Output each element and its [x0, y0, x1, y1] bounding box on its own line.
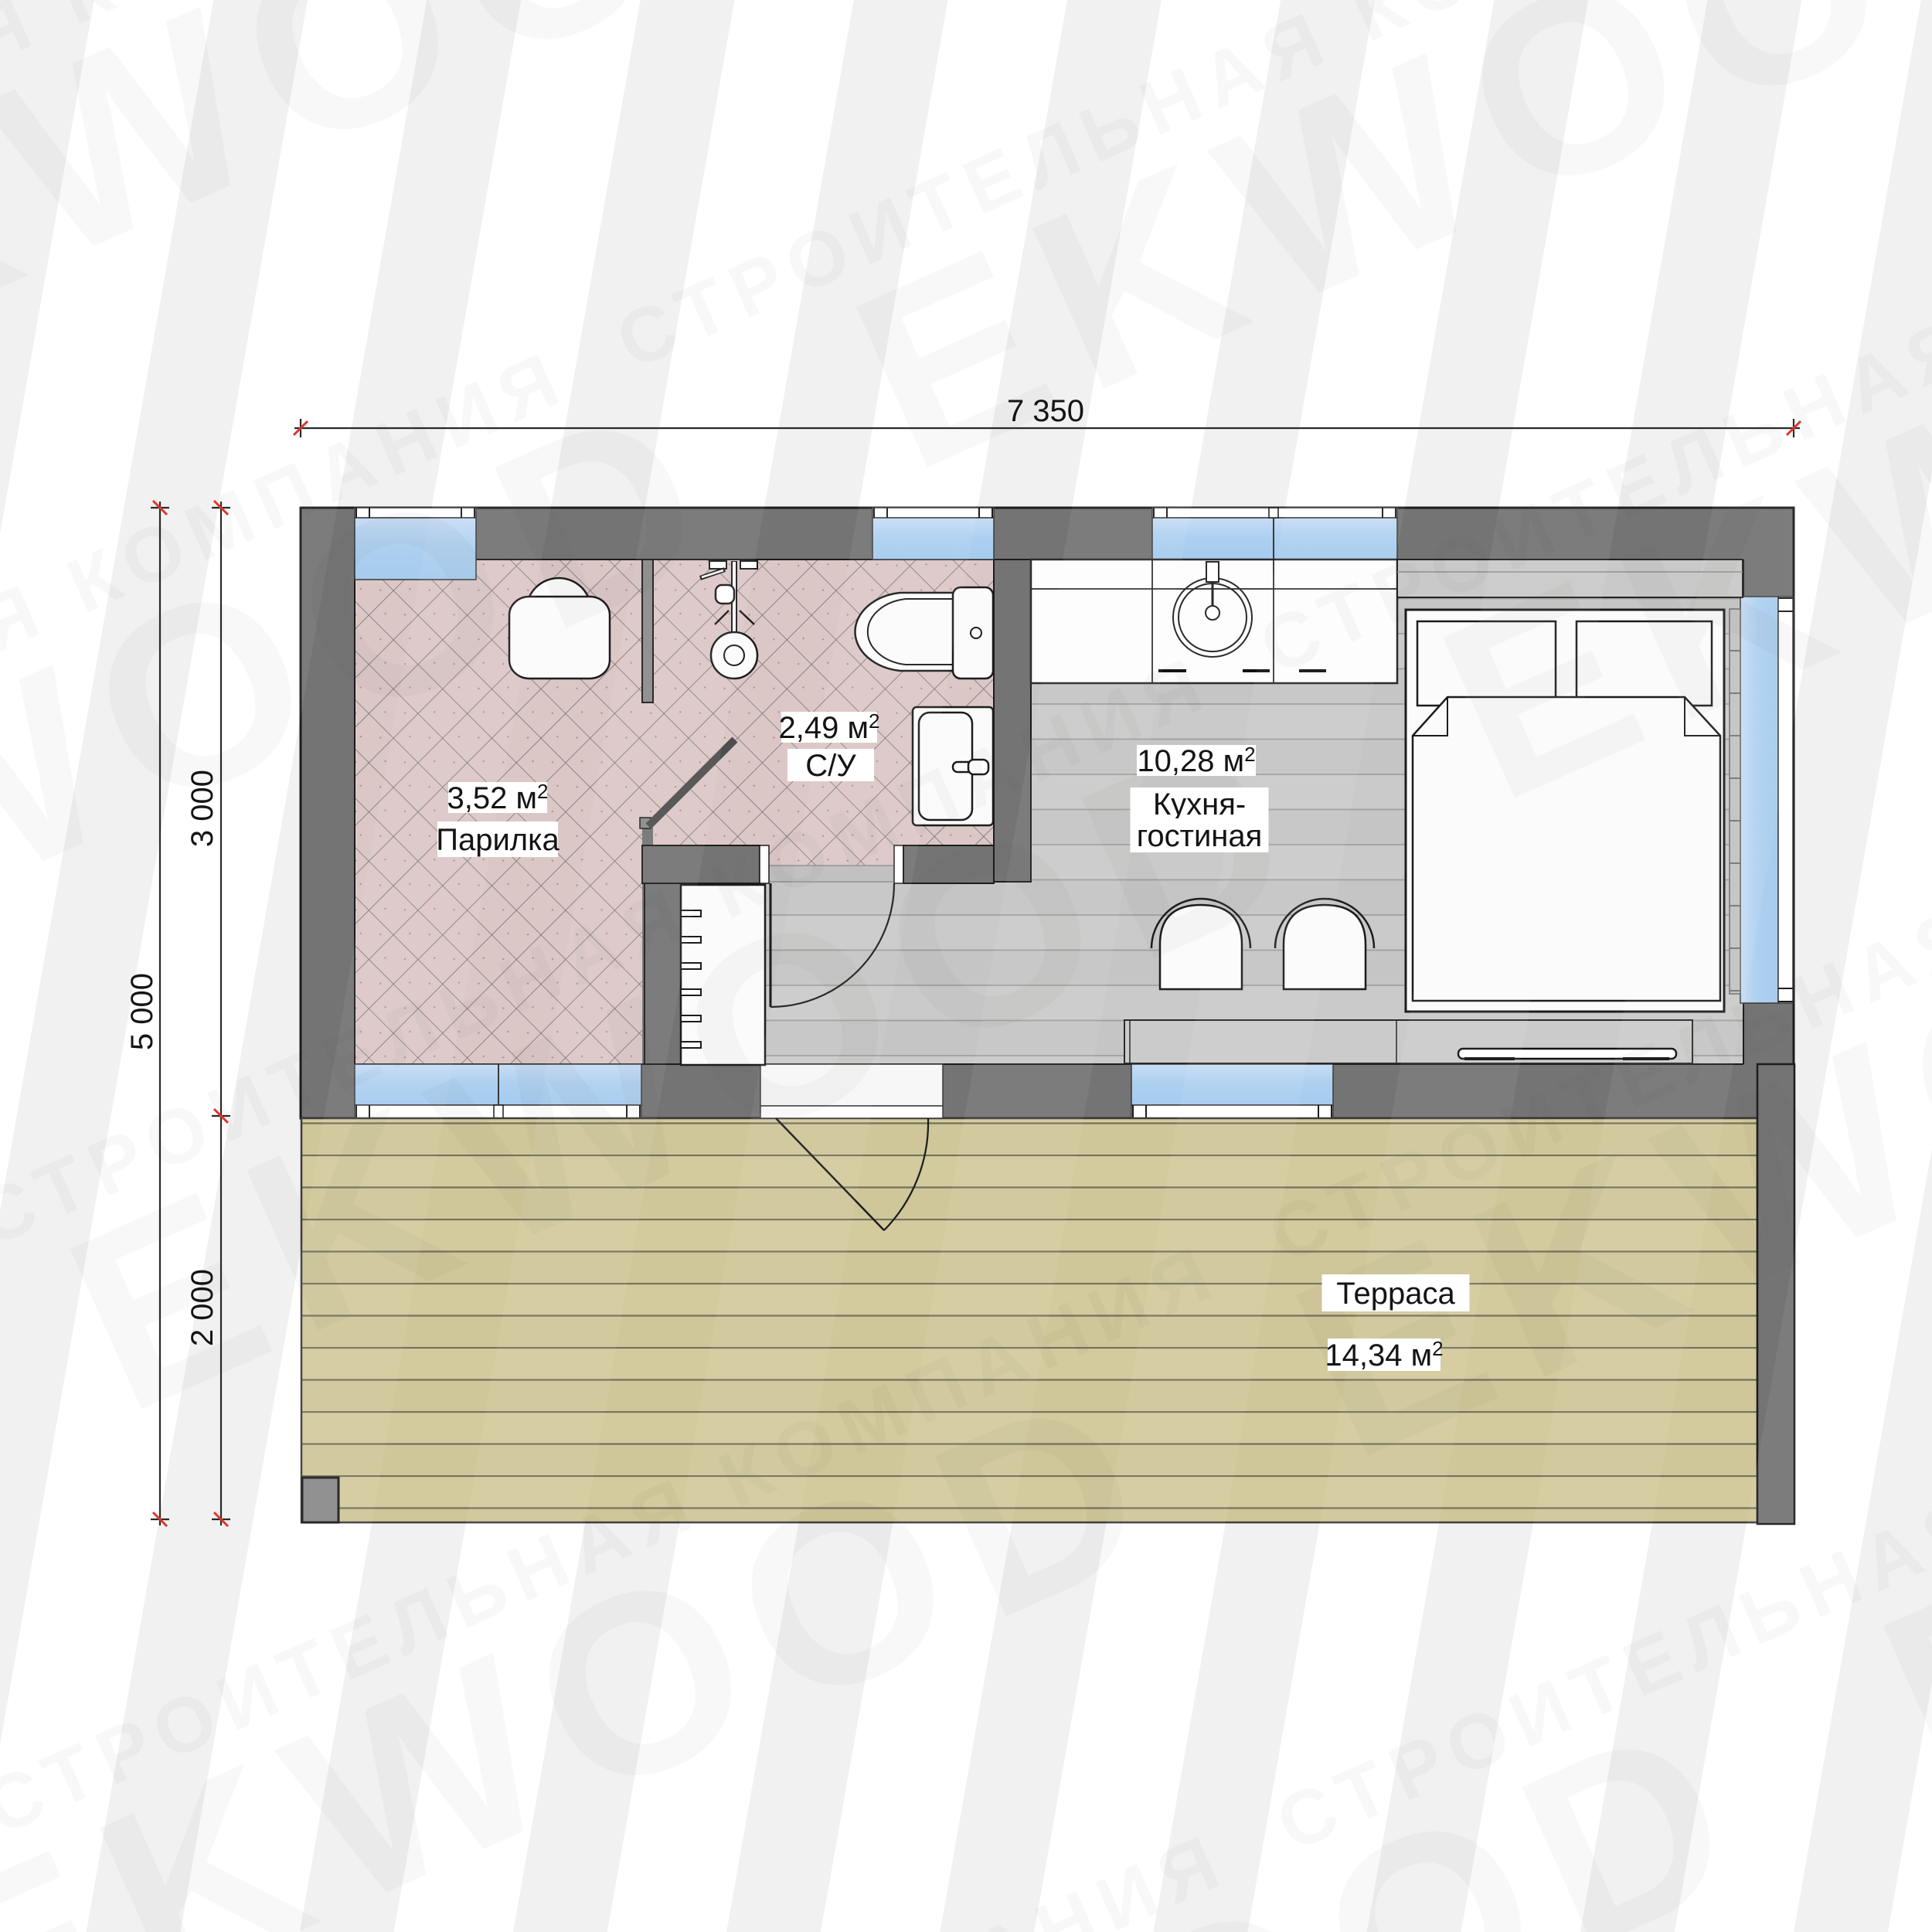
svg-text:10,28 м2: 10,28 м2	[1137, 743, 1255, 778]
svg-text:Парилка: Парилка	[436, 823, 560, 857]
svg-text:2,49 м2: 2,49 м2	[779, 709, 880, 745]
svg-text:3 000: 3 000	[185, 770, 219, 847]
svg-text:Терраса: Терраса	[1336, 1277, 1455, 1311]
svg-text:7 350: 7 350	[1007, 394, 1084, 428]
svg-text:гостиная: гостиная	[1137, 819, 1263, 853]
svg-text:5 000: 5 000	[125, 973, 159, 1050]
svg-text:14,34 м2: 14,34 м2	[1325, 1337, 1443, 1372]
svg-text:3,52 м2: 3,52 м2	[447, 780, 549, 815]
svg-text:С/У: С/У	[805, 749, 856, 783]
svg-text:2 000: 2 000	[185, 1269, 219, 1346]
svg-text:Кухня-: Кухня-	[1153, 787, 1246, 821]
